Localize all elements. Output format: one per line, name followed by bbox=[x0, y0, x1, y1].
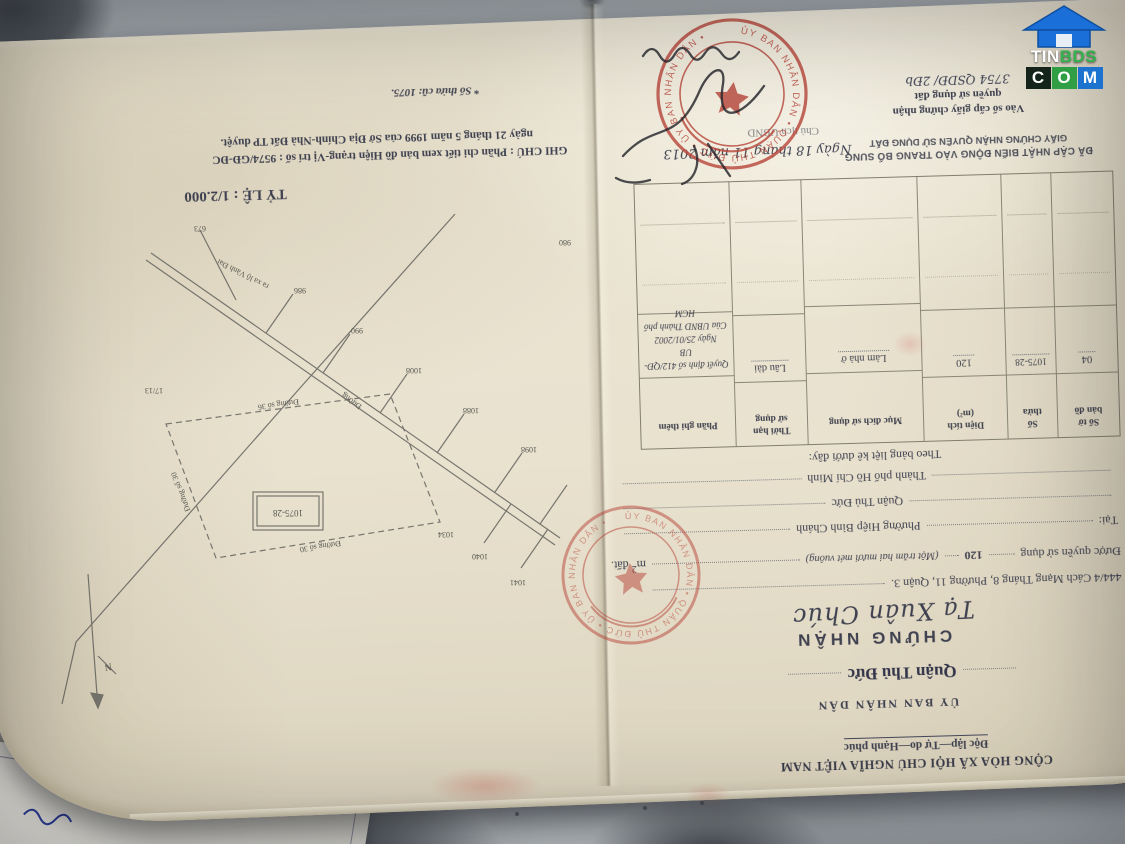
north-arrow-line bbox=[88, 574, 98, 708]
handwritten-name-scribble bbox=[643, 47, 739, 61]
map-parcel-number: 1098 bbox=[521, 445, 537, 454]
map-labels: Đường Đường số 36 Đường số 30 Đường số 3… bbox=[104, 224, 571, 673]
site-watermark: TINBDS C O M bbox=[1006, 4, 1122, 89]
watermark-tile-m: M bbox=[1078, 67, 1103, 89]
signature-stroke-tail bbox=[682, 144, 730, 184]
watermark-com: C O M bbox=[1006, 67, 1122, 89]
map-dashed-streets bbox=[166, 394, 440, 558]
map-parcel-number: 673 bbox=[194, 224, 206, 233]
dirt-speck bbox=[515, 812, 519, 816]
map-parcel-number: 17/13 bbox=[145, 386, 163, 395]
watermark-tile-o: O bbox=[1052, 67, 1077, 89]
map-parcel-number: 1040 bbox=[472, 552, 488, 561]
map-parcel-number: 980 bbox=[559, 238, 571, 247]
paper-bottom-edge bbox=[130, 775, 1125, 822]
map-street36-label: Đường số 36 bbox=[257, 397, 299, 412]
official-stamp-middle: ỦY BAN NHÂN DÂN • QUẬN THỦ ĐỨC • ỦY BAN … bbox=[544, 488, 718, 662]
signature-ink bbox=[598, 28, 838, 193]
map-parcel-number: 986 bbox=[294, 286, 306, 295]
map-parcel-box-label: 1075-28 bbox=[273, 508, 303, 518]
house-icon bbox=[1006, 4, 1122, 50]
dirt-speck bbox=[700, 801, 704, 805]
stamp-star bbox=[614, 561, 649, 595]
signature-stroke-main bbox=[623, 70, 764, 156]
map-lines bbox=[62, 214, 567, 708]
north-arrow-head bbox=[91, 693, 103, 708]
watermark-tinbds: TINBDS bbox=[1006, 47, 1122, 67]
map-road-label: Đường bbox=[340, 391, 363, 411]
watermark-tile-c: C bbox=[1026, 67, 1051, 89]
map-parcel-number: 1041 bbox=[510, 578, 526, 587]
signature-stroke-flick bbox=[616, 178, 650, 183]
map-parcel-number: 1008 bbox=[406, 366, 422, 375]
cadastral-map: Đường Đường số 36 Đường số 30 Đường số 3… bbox=[48, 196, 593, 726]
map-parcel-number: 1034 bbox=[438, 530, 454, 539]
map-street30a-label: Đường số 30 bbox=[169, 471, 192, 513]
north-symbol: N bbox=[104, 660, 113, 672]
map-parcel-number: 990 bbox=[351, 326, 363, 335]
map-main-road-line1 bbox=[151, 253, 560, 538]
photo-of-land-certificate: Đường Đường số 36 Đường số 30 Đường số 3… bbox=[0, 0, 1125, 844]
map-parcel-number: 1088 bbox=[463, 406, 479, 415]
dirt-speck bbox=[643, 806, 647, 810]
